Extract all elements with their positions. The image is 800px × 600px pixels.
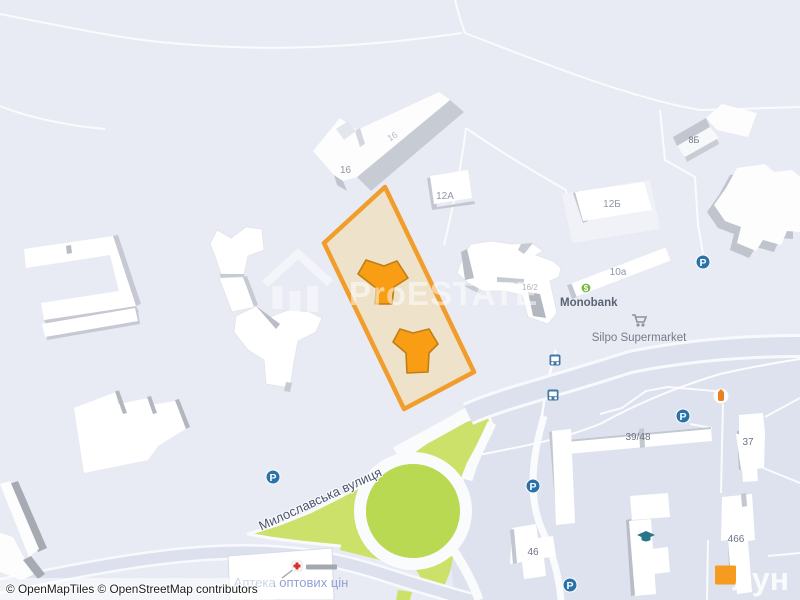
- svg-text:466: 466: [728, 534, 745, 545]
- svg-text:P: P: [269, 472, 276, 484]
- svg-text:P: P: [566, 580, 573, 592]
- svg-text:10а: 10а: [610, 267, 627, 278]
- svg-text:8Б: 8Б: [689, 135, 700, 145]
- svg-text:46: 46: [527, 547, 539, 558]
- svg-text:39/48: 39/48: [625, 432, 650, 443]
- svg-text:$: $: [584, 284, 589, 293]
- svg-text:16/2: 16/2: [522, 283, 538, 292]
- svg-text:12А: 12А: [436, 191, 454, 202]
- svg-text:16: 16: [340, 165, 352, 176]
- svg-text:ProESTATE: ProESTATE: [349, 275, 538, 312]
- svg-text:12Б: 12Б: [603, 199, 621, 210]
- svg-text:P: P: [699, 257, 706, 269]
- svg-text:лун: лун: [732, 561, 789, 597]
- svg-text:© OpenMapTiles © OpenStreetMap: © OpenMapTiles © OpenStreetMap contribut…: [6, 582, 258, 596]
- svg-text:P: P: [529, 481, 536, 493]
- svg-text:P: P: [679, 411, 686, 423]
- svg-text:Silpo Supermarket: Silpo Supermarket: [592, 332, 687, 344]
- svg-text:37: 37: [742, 437, 754, 448]
- svg-text:Monobank: Monobank: [560, 297, 618, 309]
